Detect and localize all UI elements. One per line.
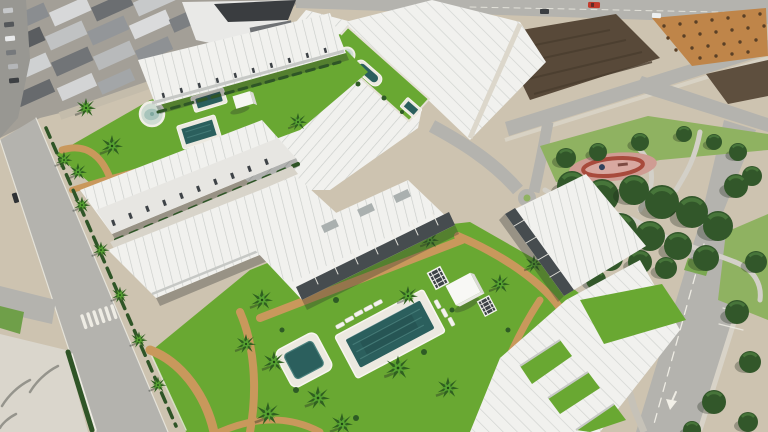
aerial-render: Aerial 3D render of a new-build resident… <box>0 0 768 432</box>
dark-car <box>540 9 549 14</box>
roundabout-island <box>524 195 531 202</box>
white-car <box>652 13 661 18</box>
aerial-render-stage: Aerial 3D render of a new-build resident… <box>0 0 768 432</box>
red-car <box>588 2 600 8</box>
